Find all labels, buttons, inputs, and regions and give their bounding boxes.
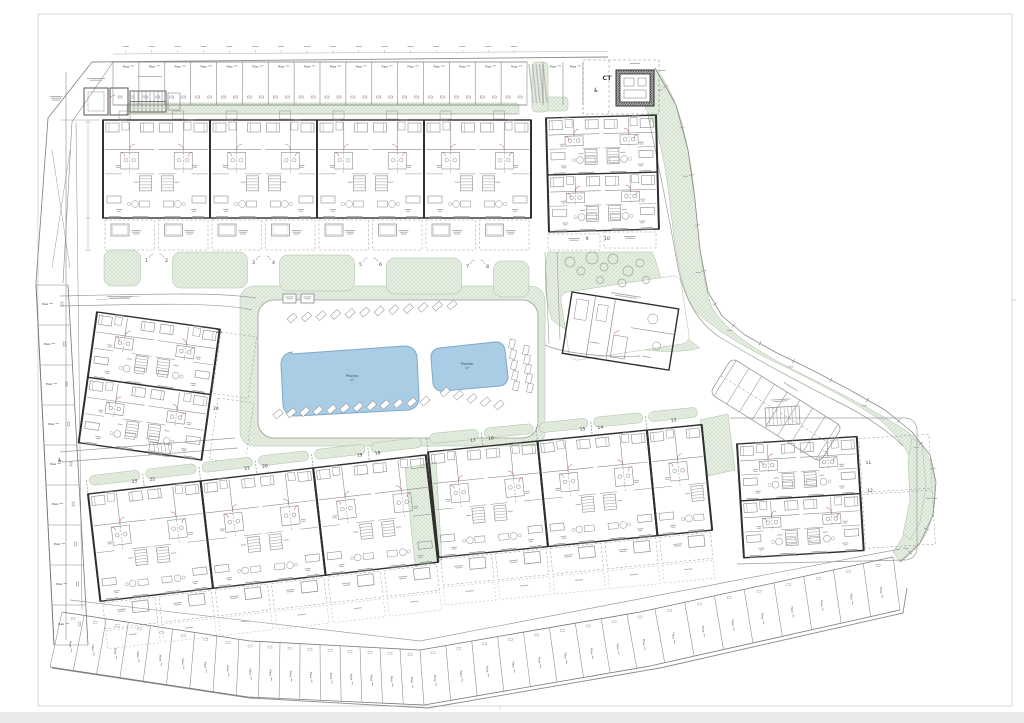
micro-text <box>727 330 732 331</box>
micro-text <box>839 486 845 489</box>
parking-stall-label: Plaza <box>701 626 705 637</box>
svg-text:Plaza: Plaza <box>44 343 51 346</box>
building-unit <box>424 120 476 218</box>
parking-stall-label: Plaza <box>91 644 94 655</box>
micro-text <box>823 532 828 533</box>
micro-text <box>561 165 567 168</box>
micro-text <box>618 549 627 553</box>
building-unit <box>546 117 600 175</box>
micro-text <box>564 554 573 558</box>
micro-text <box>149 46 155 47</box>
parking-stall-label: Plaza <box>200 66 211 69</box>
svg-text:Plaza: Plaza <box>849 593 852 600</box>
svg-text:Plaza: Plaza <box>54 543 61 546</box>
micro-text <box>670 525 676 528</box>
svg-text:Plaza: Plaza <box>790 606 793 613</box>
parking-stall-label: Plaza <box>407 66 418 69</box>
building-block-f: 232221201918 <box>86 437 444 649</box>
micro-text <box>454 565 463 569</box>
svg-text:Plaza: Plaza <box>349 674 352 681</box>
building-block-g: 1716151413 <box>426 407 717 605</box>
svg-text:Plaza: Plaza <box>42 303 49 306</box>
building-unit <box>317 120 369 218</box>
micro-text <box>131 230 141 235</box>
building-unit <box>159 120 211 218</box>
unit-number: 25 <box>216 329 222 335</box>
micro-text <box>113 590 119 593</box>
micro-text <box>774 477 779 478</box>
parking-stall-label: Plaza <box>459 66 470 69</box>
accessible-parking-icon: ♿ <box>57 457 62 464</box>
micro-text <box>862 405 867 406</box>
micro-text <box>222 165 227 168</box>
svg-text:Plaza: Plaza <box>304 66 311 69</box>
stairs-icon <box>691 485 704 501</box>
micro-text <box>104 371 110 375</box>
stairs-icon <box>269 534 283 550</box>
micro-text <box>286 589 295 593</box>
ct-building <box>616 70 654 106</box>
micro-text <box>117 608 126 612</box>
micro-text <box>129 633 137 635</box>
micro-text <box>455 182 460 183</box>
micro-text <box>659 70 666 71</box>
micro-text <box>777 534 782 535</box>
svg-text:Plaza: Plaza <box>52 503 59 506</box>
parking-stall-label: Plaza <box>44 343 55 346</box>
micro-text <box>642 356 651 358</box>
parking-row-top: PlazaPlazaPlazaPlazaPlazaPlazaPlazaPlaza… <box>113 62 583 105</box>
parking-stall-label: Plaza <box>158 655 161 666</box>
micro-text <box>107 541 112 544</box>
svg-text:Plaza: Plaza <box>123 66 130 69</box>
building-block-b <box>546 115 659 232</box>
parking-stall-label: Plaza <box>820 600 824 611</box>
parking-stall-label: Plaza <box>485 666 488 677</box>
micro-text <box>771 398 791 402</box>
parking-stall-label: Plaza <box>289 671 292 682</box>
micro-text <box>382 46 388 47</box>
building-unit <box>547 174 601 232</box>
micro-text <box>116 209 122 212</box>
parking-stall-label: Plaza <box>672 632 675 643</box>
building-unit <box>201 475 268 589</box>
svg-text:Plaza: Plaza <box>433 66 440 69</box>
micro-text <box>407 165 412 168</box>
micro-text <box>281 182 286 183</box>
micro-text <box>903 548 908 549</box>
micro-text <box>634 480 639 483</box>
svg-text:Plaza: Plaza <box>149 66 156 69</box>
parking-stall-label: Plaza <box>329 673 332 684</box>
svg-text:Plaza: Plaza <box>91 644 94 651</box>
parking-row-bottom: PlazaPlazaPlazaPlazaPlazaPlazaPlazaPlaza… <box>50 557 900 705</box>
parking-stall-label: Plaza <box>304 66 315 69</box>
parking-stall-label: Plaza <box>226 66 237 69</box>
svg-text:Plaza: Plaza <box>407 66 414 69</box>
svg-text:Plaza: Plaza <box>485 66 492 69</box>
micro-text <box>452 230 462 235</box>
micro-text <box>201 46 207 47</box>
micro-text <box>580 210 585 211</box>
micro-text <box>185 627 193 629</box>
svg-text:Plaza: Plaza <box>731 619 734 626</box>
stairs-icon <box>134 549 148 565</box>
micro-text <box>388 182 393 183</box>
micro-text <box>560 144 565 147</box>
micro-text <box>568 238 580 241</box>
micro-text <box>914 447 919 448</box>
parking-stall-label: Plaza <box>69 641 72 652</box>
micro-text <box>446 499 451 502</box>
svg-text:Plaza: Plaza <box>459 671 462 678</box>
garden-plots-c: 2524 <box>96 296 257 464</box>
micro-text <box>298 614 306 616</box>
micro-text <box>117 424 122 426</box>
unit-number: 2 <box>165 258 168 264</box>
parking-stall-label: Plaza <box>564 652 567 663</box>
ct-plot: ♿CT <box>583 60 666 114</box>
building-unit <box>373 120 425 218</box>
parking-stall-label: Plaza <box>248 669 251 680</box>
micro-text <box>301 519 306 522</box>
parking-stall-label: Plaza <box>879 587 883 598</box>
stairs-icon <box>461 176 473 191</box>
stairs-icon <box>581 496 594 512</box>
parking-stall-label: Plaza <box>433 66 444 69</box>
micro-text <box>398 576 407 580</box>
parking-stall-label: Plaza <box>54 543 65 546</box>
stairs-icon <box>381 521 395 537</box>
micro-text <box>410 601 418 603</box>
micro-text <box>637 528 643 531</box>
micro-text <box>171 552 176 553</box>
micro-text <box>630 574 638 576</box>
building-unit <box>210 120 262 218</box>
micro-text <box>138 76 162 77</box>
unit-number: 3 <box>252 260 255 266</box>
svg-text:Plaza: Plaza <box>459 66 466 69</box>
micro-text <box>252 46 258 47</box>
micro-text <box>128 557 133 558</box>
svg-text:Plaza: Plaza <box>511 66 518 69</box>
parking-stall-label: Plaza <box>56 583 67 586</box>
stairs-icon <box>354 176 366 191</box>
svg-text:Plaza: Plaza <box>46 383 53 386</box>
micro-text <box>190 383 196 387</box>
parking-stall-label: Plaza <box>760 613 764 624</box>
micro-text <box>338 564 344 567</box>
unit-number: 22 <box>149 476 156 483</box>
micro-text <box>284 539 289 540</box>
micro-text <box>185 230 195 235</box>
parking-stall-label: Plaza <box>113 648 116 659</box>
micro-text <box>220 528 225 531</box>
building-unit <box>313 462 380 576</box>
micro-text <box>87 78 105 81</box>
svg-text:Plaza: Plaza <box>200 66 207 69</box>
parking-stall-label: Plaza <box>330 66 341 69</box>
unit-number: 12 <box>867 488 873 494</box>
micro-text <box>186 422 191 425</box>
stairs-icon <box>483 176 495 191</box>
parking-stall-label: Plaza <box>181 658 184 669</box>
micro-text <box>127 358 132 360</box>
parking-stall-label: Plaza <box>433 675 436 686</box>
micro-text <box>575 579 583 581</box>
parking-stall-label: Plaza <box>48 423 59 426</box>
svg-text:Plaza: Plaza <box>590 648 593 655</box>
parking-stall-label: Plaza <box>278 66 289 69</box>
micro-text <box>673 543 682 547</box>
svg-text:Plaza: Plaza <box>564 652 567 659</box>
parking-stall-label: Plaza <box>616 643 619 654</box>
svg-text:Plaza: Plaza <box>701 626 704 633</box>
svg-text:Plaza: Plaza <box>48 423 55 426</box>
stairs-icon <box>472 507 485 523</box>
unit-number: 6 <box>379 262 382 268</box>
parking-stall-label: Plaza <box>309 672 312 683</box>
micro-text <box>353 531 358 532</box>
micro-text <box>437 209 443 212</box>
unit-number: 1 <box>145 258 148 264</box>
parking-stall-label: Plaza <box>849 593 853 604</box>
micro-text <box>98 409 103 412</box>
svg-text:Plaza: Plaza <box>356 66 363 69</box>
micro-text <box>684 568 692 570</box>
svg-text:Plaza: Plaza <box>158 655 161 662</box>
micro-text <box>520 585 528 587</box>
parking-stall-label: Plaza <box>136 651 139 662</box>
svg-text:Plaza: Plaza <box>50 463 57 466</box>
micro-text <box>305 568 311 571</box>
site-plan-drawing: Piscinam²Piscinam²12345678910♿CT25242322… <box>0 0 1024 723</box>
stairs-icon <box>376 176 388 191</box>
building-unit <box>266 120 318 218</box>
unit-number: 7 <box>466 264 469 270</box>
parking-stall-label: Plaza <box>252 66 263 69</box>
building-unit <box>802 494 863 554</box>
parking-stall-label: Plaza <box>175 66 186 69</box>
unit-number: 19 <box>357 452 364 459</box>
building-unit <box>142 386 211 460</box>
parking-stall-label: Plaza <box>269 670 272 681</box>
parking-stall-label: Plaza <box>123 66 134 69</box>
micro-text <box>524 491 529 494</box>
unit-number: 23 <box>131 478 138 485</box>
parking-stall-label: Plaza <box>731 619 735 630</box>
micro-text <box>300 165 305 168</box>
parking-stall-label: Plaza <box>538 657 541 668</box>
micro-text <box>226 577 232 580</box>
micro-text <box>685 493 690 494</box>
unit-number: 15 <box>579 426 585 433</box>
micro-text <box>408 46 414 47</box>
svg-text:Plaza: Plaza <box>382 66 389 69</box>
accessible-parking-icon: ♿ <box>593 87 598 94</box>
parking-stall-label: Plaza <box>42 303 53 306</box>
micro-text <box>278 46 284 47</box>
stairs-icon <box>603 494 616 510</box>
micro-text <box>134 182 139 183</box>
micro-text <box>466 515 471 516</box>
svg-text:Plaza: Plaza <box>390 676 393 683</box>
micro-text <box>926 498 931 499</box>
micro-text <box>459 46 465 47</box>
svg-text:Plaza: Plaza <box>642 639 645 646</box>
parking-stall-label: Plaza <box>590 648 593 659</box>
micro-text <box>223 209 229 212</box>
micro-text <box>506 230 516 235</box>
svg-text:Plaza: Plaza <box>203 662 206 669</box>
parking-stall-label: Plaza <box>203 662 206 673</box>
micro-text <box>465 590 473 592</box>
micro-text <box>665 477 670 480</box>
terrace-strip-b: 910 <box>548 232 656 250</box>
micro-text <box>329 165 334 168</box>
unit-number: 14 <box>597 424 603 431</box>
unit-number: 16 <box>488 435 494 442</box>
micro-text <box>173 365 178 367</box>
building-unit <box>604 172 658 230</box>
micro-text <box>181 448 187 452</box>
micro-text <box>174 182 179 183</box>
micro-text <box>514 165 519 168</box>
parking-stall-label: Plaza <box>149 66 160 69</box>
ct-label: CT <box>602 74 612 82</box>
micro-text <box>95 436 101 440</box>
unit-number: 5 <box>359 262 362 268</box>
micro-text <box>528 539 534 542</box>
micro-text <box>241 544 246 545</box>
micro-text <box>405 209 411 212</box>
micro-text <box>485 46 491 47</box>
building-unit <box>647 425 710 536</box>
stairs-icon <box>134 356 148 373</box>
micro-text <box>562 222 568 225</box>
building-block-a <box>103 120 531 218</box>
building-unit <box>740 497 801 557</box>
micro-text <box>191 209 197 212</box>
parking-stall-label: Plaza <box>390 676 393 687</box>
svg-text:Plaza: Plaza <box>226 66 233 69</box>
svg-text:Plaza: Plaza <box>820 600 823 607</box>
micro-text <box>193 165 198 168</box>
micro-text <box>512 209 518 212</box>
micro-text <box>579 153 584 154</box>
micro-text <box>617 500 622 501</box>
unit-number: 21 <box>244 465 251 472</box>
building-unit <box>79 377 148 451</box>
stairs-icon <box>156 547 170 563</box>
svg-text:Plaza: Plaza <box>252 66 259 69</box>
parking-stall-label: Plaza <box>356 66 367 69</box>
micro-text <box>107 344 112 347</box>
micro-text <box>304 46 310 47</box>
parking-stall-label: Plaza <box>226 665 229 676</box>
building-unit <box>88 488 155 602</box>
unit-number: 11 <box>865 460 871 466</box>
svg-text:Plaza: Plaza <box>330 66 337 69</box>
stairs-icon <box>162 176 174 191</box>
micro-text <box>638 163 644 166</box>
building-unit <box>799 437 860 497</box>
stairs-icon <box>125 421 139 438</box>
svg-text:Plaza: Plaza <box>269 670 272 677</box>
stairs-icon <box>494 505 507 521</box>
unit-number: 24 <box>213 406 219 412</box>
micro-text <box>241 182 246 183</box>
micro-text <box>683 176 688 177</box>
micro-text <box>173 602 182 606</box>
micro-text <box>188 532 193 535</box>
building-unit <box>603 115 657 173</box>
micro-text <box>123 46 129 47</box>
parking-stall-label: Plaza <box>570 66 581 69</box>
unit-number: 9 <box>586 236 589 242</box>
micro-text <box>639 220 645 223</box>
svg-text:Plaza: Plaza <box>616 643 619 650</box>
unit-number: 4 <box>272 260 275 266</box>
micro-text <box>561 536 567 539</box>
micro-text <box>842 542 848 545</box>
micro-text <box>630 63 640 64</box>
svg-text:Plaza: Plaza <box>56 583 63 586</box>
micro-text <box>348 182 353 183</box>
svg-text:Plaza: Plaza <box>175 66 182 69</box>
svg-text:Plaza: Plaza <box>289 671 292 678</box>
svg-text:Plaza: Plaza <box>309 672 312 679</box>
micro-text <box>756 526 761 529</box>
micro-text <box>758 548 764 551</box>
micro-text <box>658 89 663 90</box>
svg-text:Plaza: Plaza <box>760 613 763 620</box>
parking-stall-label: Plaza <box>485 66 496 69</box>
parking-stall-label: Plaza <box>410 677 413 688</box>
building-block-c <box>79 312 220 460</box>
svg-text:Plaza: Plaza <box>329 673 332 680</box>
unit-number: 20 <box>262 463 269 470</box>
svg-text:Plaza: Plaza <box>278 66 285 69</box>
micro-text <box>342 582 351 586</box>
parking-stall-label: Plaza <box>349 674 352 685</box>
parking-stall-label: Plaza <box>550 66 561 69</box>
building-unit <box>737 440 798 500</box>
micro-text <box>332 515 337 518</box>
svg-text:Plaza: Plaza <box>550 66 557 69</box>
svg-text:Plaza: Plaza <box>511 662 514 669</box>
svg-text:Plaza: Plaza <box>672 632 675 639</box>
parking-stall-label: Plaza <box>459 671 462 682</box>
micro-text <box>330 46 336 47</box>
micro-text <box>175 46 181 47</box>
building-unit <box>88 312 157 386</box>
micro-text <box>843 521 848 524</box>
micro-text <box>576 504 581 505</box>
micro-text <box>509 560 518 564</box>
micro-text <box>755 491 761 494</box>
micro-text <box>753 469 758 472</box>
pool-small: Piscinam² <box>431 342 508 391</box>
micro-text <box>696 272 701 273</box>
svg-text:Plaza: Plaza <box>136 651 139 658</box>
stairs-icon <box>247 536 261 552</box>
svg-text:Plaza: Plaza <box>248 669 251 676</box>
micro-text <box>298 209 304 212</box>
micro-text <box>639 142 644 145</box>
micro-text <box>396 526 401 527</box>
micro-text <box>107 296 133 299</box>
